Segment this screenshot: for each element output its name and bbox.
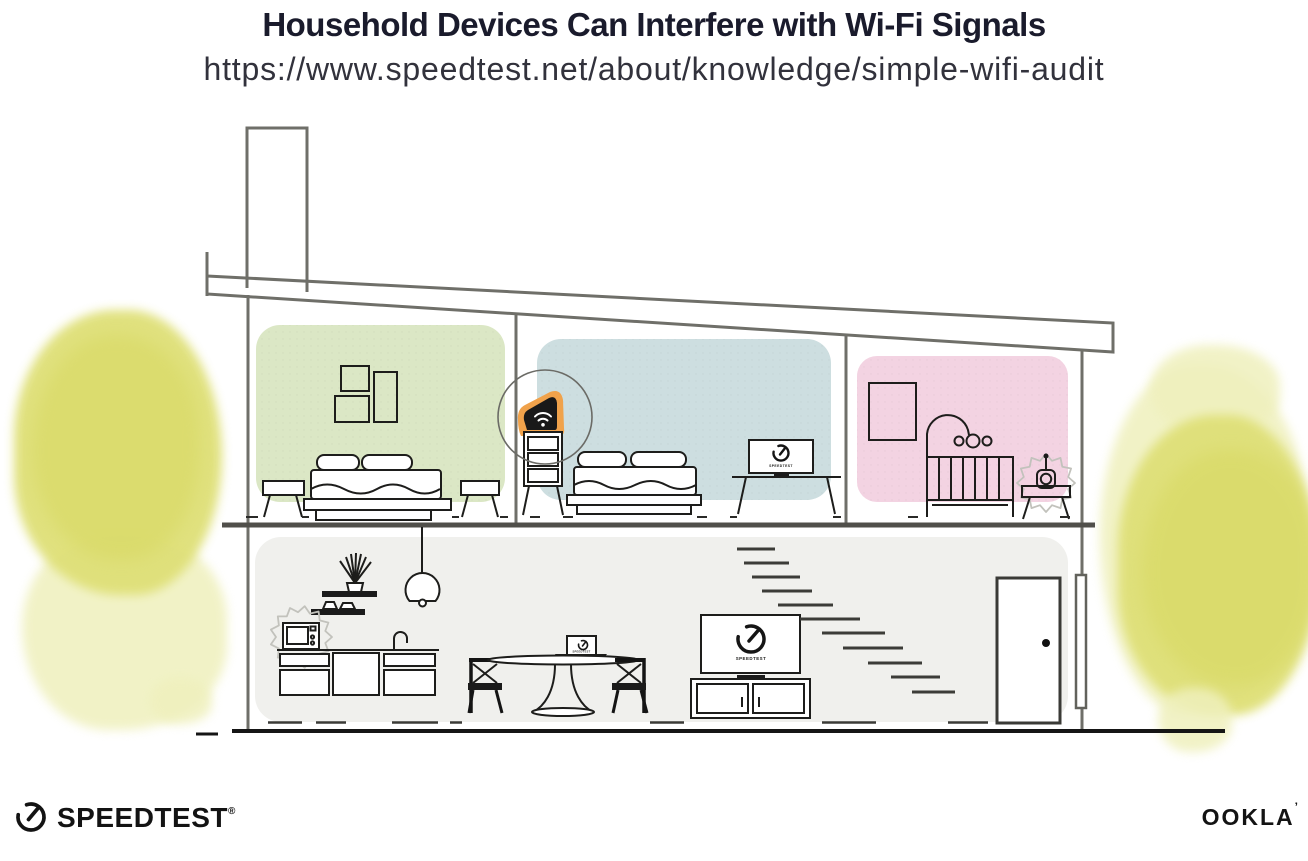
bed-icon: [567, 452, 701, 514]
ookla-trademark: ’: [1295, 800, 1298, 814]
bowl-icon: [323, 602, 337, 609]
microwave-icon: [283, 623, 319, 649]
bowl-icon: [340, 603, 355, 609]
speedtest-wordmark: SPEEDTEST: [57, 802, 228, 834]
router-shelf: [523, 432, 563, 515]
door-knob: [1042, 639, 1050, 647]
dining-laptop-label: SPEEDTEST: [572, 650, 590, 654]
ookla-wordmark: OOKLA: [1202, 804, 1295, 830]
infographic-canvas: Household Devices Can Interfere with Wi-…: [0, 0, 1308, 861]
chimney: [247, 128, 307, 292]
living-tv-label: SPEEDTEST: [736, 656, 767, 661]
media-console: [691, 679, 810, 718]
plant-pot-icon: [347, 583, 363, 592]
registered-mark: ®: [228, 806, 235, 817]
bedroom-monitor-label: SPEEDTEST: [769, 464, 793, 468]
tv-icon: SPEEDTEST: [701, 615, 800, 679]
bedroom-monitor: SPEEDTEST: [749, 440, 813, 476]
front-door: [997, 578, 1060, 723]
speedtest-gauge-icon: [13, 799, 50, 836]
speedtest-logo: SPEEDTEST®: [13, 799, 235, 836]
house-cross-section: SPEEDTEST: [0, 0, 1308, 861]
ookla-logo: OOKLA’: [1202, 804, 1298, 831]
downspout: [1076, 575, 1086, 708]
